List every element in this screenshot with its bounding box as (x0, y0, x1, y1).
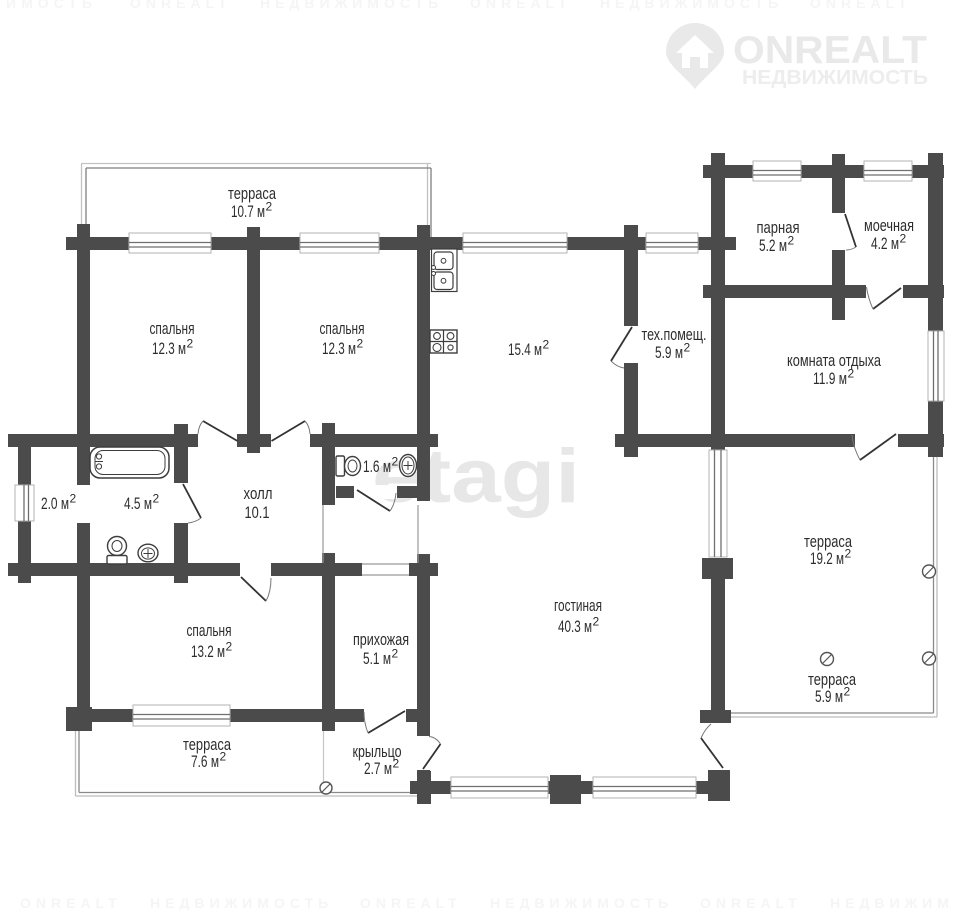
svg-text:2: 2 (357, 337, 364, 351)
svg-text:2: 2 (900, 232, 907, 246)
svg-text:2: 2 (848, 367, 855, 381)
svg-text:ONREALT: ONREALT (130, 0, 232, 11)
svg-text:ONREALT: ONREALT (810, 0, 912, 11)
svg-text:5.9 м: 5.9 м (655, 343, 683, 362)
svg-text:4.5 м: 4.5 м (124, 494, 152, 513)
svg-text:НЕДВИЖИМ: НЕДВИЖИМ (830, 895, 954, 910)
svg-text:12.3 м: 12.3 м (152, 339, 186, 358)
svg-text:11.9 м: 11.9 м (813, 369, 847, 388)
svg-text:15.4 м: 15.4 м (508, 340, 542, 359)
svg-text:2: 2 (226, 640, 233, 654)
svg-text:5.9 м: 5.9 м (815, 687, 843, 706)
svg-text:ONREALT: ONREALT (733, 29, 927, 72)
svg-text:40.3 м: 40.3 м (558, 617, 592, 636)
svg-text:7.6 м: 7.6 м (191, 752, 219, 771)
svg-text:холл: холл (244, 484, 273, 503)
svg-text:прихожая: прихожая (353, 630, 409, 649)
svg-text:2: 2 (220, 750, 227, 764)
svg-text:2: 2 (593, 615, 600, 629)
svg-text:НЕДВИЖИМОСТЬ: НЕДВИЖИМОСТЬ (260, 0, 443, 11)
svg-text:спальня: спальня (150, 319, 195, 338)
svg-text:НЕДВИЖИМОСТЬ: НЕДВИЖИМОСТЬ (150, 895, 333, 910)
svg-text:2: 2 (845, 547, 852, 561)
svg-text:ИМОСТЬ: ИМОСТЬ (6, 0, 97, 11)
svg-text:13.2 м: 13.2 м (191, 642, 225, 661)
svg-text:гостиная: гостиная (554, 596, 602, 615)
svg-text:12.3 м: 12.3 м (322, 339, 356, 358)
svg-text:5.1 м: 5.1 м (363, 649, 391, 668)
svg-text:2: 2 (266, 200, 273, 214)
svg-text:моечная: моечная (864, 216, 914, 235)
svg-text:2: 2 (393, 757, 400, 771)
svg-text:2: 2 (392, 647, 399, 661)
svg-text:2: 2 (392, 455, 399, 469)
svg-text:ONREALT: ONREALT (360, 895, 462, 910)
svg-text:спальня: спальня (187, 621, 232, 640)
svg-text:спальня: спальня (320, 319, 365, 338)
svg-text:10.1: 10.1 (245, 503, 270, 522)
svg-text:НЕДВИЖИМОСТЬ: НЕДВИЖИМОСТЬ (490, 895, 673, 910)
svg-text:2: 2 (788, 234, 795, 248)
svg-text:комната отдыха: комната отдыха (787, 351, 881, 370)
svg-text:19.2 м: 19.2 м (810, 549, 844, 568)
svg-text:2: 2 (844, 685, 851, 699)
svg-text:тех.помещ.: тех.помещ. (642, 325, 707, 344)
svg-text:2: 2 (543, 338, 550, 352)
svg-text:5.2 м: 5.2 м (759, 236, 787, 255)
svg-text:4.2 м: 4.2 м (871, 234, 899, 253)
svg-text:10.7 м: 10.7 м (231, 202, 265, 221)
svg-text:НЕДВИЖИМОСТЬ: НЕДВИЖИМОСТЬ (742, 67, 928, 89)
svg-text:ONREALT: ONREALT (700, 895, 802, 910)
svg-text:2: 2 (153, 492, 160, 506)
svg-text:2.7 м: 2.7 м (364, 759, 392, 778)
svg-text:ONREALT: ONREALT (470, 0, 572, 11)
svg-text:2.0 м: 2.0 м (41, 494, 69, 513)
svg-text:2: 2 (70, 492, 77, 506)
svg-text:1.6 м: 1.6 м (363, 457, 391, 476)
svg-text:2: 2 (187, 337, 194, 351)
svg-text:НЕДВИЖИМОСТЬ: НЕДВИЖИМОСТЬ (600, 0, 783, 11)
svg-text:ONREALT: ONREALT (20, 895, 122, 910)
svg-text:2: 2 (684, 341, 691, 355)
